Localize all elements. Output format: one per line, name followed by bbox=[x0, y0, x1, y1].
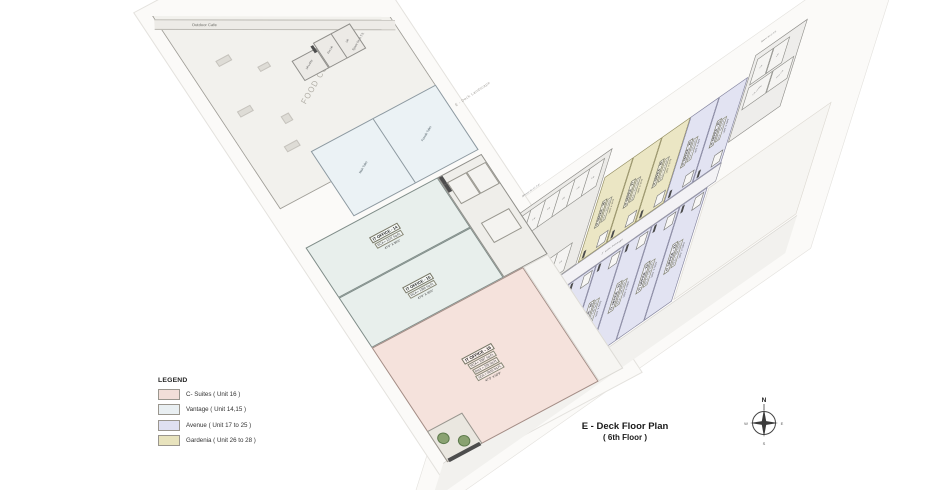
legend-swatch bbox=[158, 435, 180, 446]
plan-title-line1: E - Deck Floor Plan bbox=[540, 421, 710, 432]
legend-label: Vantage ( Unit 14,15 ) bbox=[186, 406, 246, 413]
legend-row-vantage: Vantage ( Unit 14,15 ) bbox=[158, 404, 256, 415]
plan-title: E - Deck Floor Plan ( 6th Floor ) bbox=[540, 421, 710, 442]
fire-lift-label: Fire Lift bbox=[776, 70, 783, 79]
legend-swatch bbox=[158, 420, 180, 431]
legend-label: Avenue ( Unit 17 to 25 ) bbox=[186, 422, 251, 429]
lift-label: Lift bbox=[776, 53, 779, 58]
outdoor-cafe-label: Outdoor Cafe bbox=[192, 22, 217, 27]
outdoor-cafe-strip: Outdoor Cafe bbox=[154, 19, 395, 30]
lift-lobby-label: Lift Lobby bbox=[752, 85, 761, 97]
lift-label: Lift bbox=[559, 259, 563, 264]
lift-label: Lift bbox=[576, 185, 580, 190]
legend-label: Gardenia ( Unit 26 to 28 ) bbox=[186, 437, 256, 444]
legend-row-c-suites: C- Suites ( Unit 16 ) bbox=[158, 389, 256, 400]
compass-south-label: S bbox=[763, 441, 766, 446]
female-toilet-label: Female Toilet bbox=[420, 125, 432, 142]
lift-label: Lift bbox=[760, 64, 763, 69]
lift-label: Lift bbox=[547, 206, 551, 211]
floor-plan-canvas: LiftLiftLiftLiftLiftLift LiftLiftLiftLif… bbox=[0, 0, 940, 490]
lift-label: Lift bbox=[562, 196, 566, 201]
lift-label: Lift bbox=[591, 175, 595, 180]
lift-label: Lift bbox=[532, 216, 536, 221]
service-cell bbox=[481, 208, 522, 243]
fire-lift-label: Fire Lift bbox=[327, 46, 334, 55]
deck-landscape-label: E - Deck Landscape bbox=[454, 81, 491, 107]
plan-title-line2: ( 6th Floor ) bbox=[540, 433, 710, 442]
compass-icon: N W E S bbox=[742, 392, 786, 450]
compass-west-label: W bbox=[744, 421, 748, 426]
legend-label: C- Suites ( Unit 16 ) bbox=[186, 391, 240, 398]
legend-swatch bbox=[158, 404, 180, 415]
compass-north-label: N bbox=[762, 397, 767, 404]
compass-east-label: E bbox=[781, 421, 784, 426]
legend: LEGEND C- Suites ( Unit 16 ) Vantage ( U… bbox=[158, 377, 256, 446]
lift-lobby-label: Lift Lobby bbox=[306, 59, 314, 70]
lift-label: Lift bbox=[346, 39, 350, 43]
main-toilet-label: Main Toilet bbox=[358, 160, 369, 174]
legend-heading: LEGEND bbox=[158, 377, 256, 384]
legend-row-avenue: Avenue ( Unit 17 to 25 ) bbox=[158, 420, 256, 431]
legend-swatch bbox=[158, 389, 180, 400]
legend-row-gardenia: Gardenia ( Unit 26 to 28 ) bbox=[158, 435, 256, 446]
